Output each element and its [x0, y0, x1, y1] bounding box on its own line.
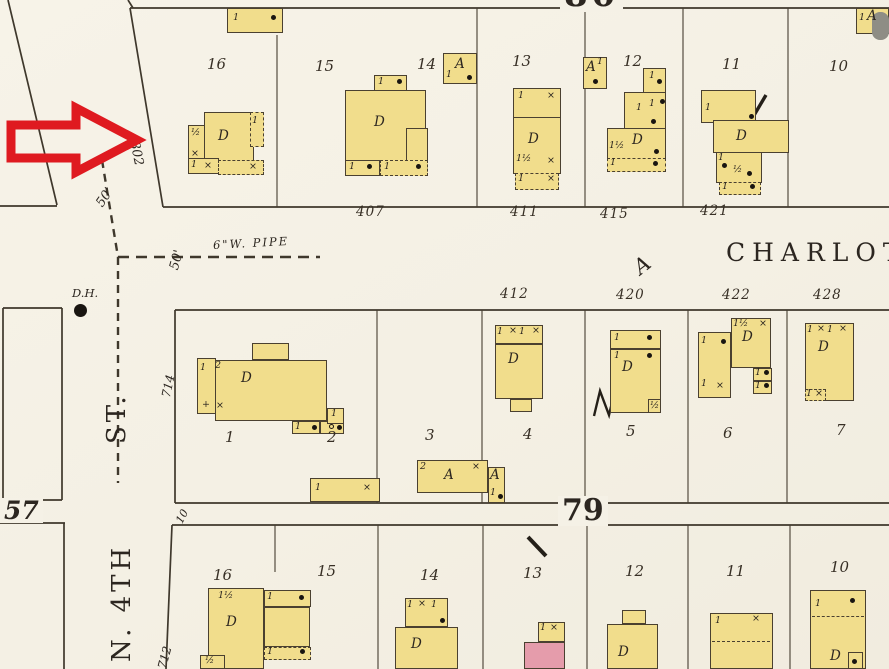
- sanborn-fire-insurance-map: 1 ½ × D 1 1 × × 1 D 1 1 A 1 1 × D 1½ × 1…: [0, 0, 889, 669]
- annotation-overlay: [0, 0, 889, 669]
- red-arrow: [11, 108, 137, 172]
